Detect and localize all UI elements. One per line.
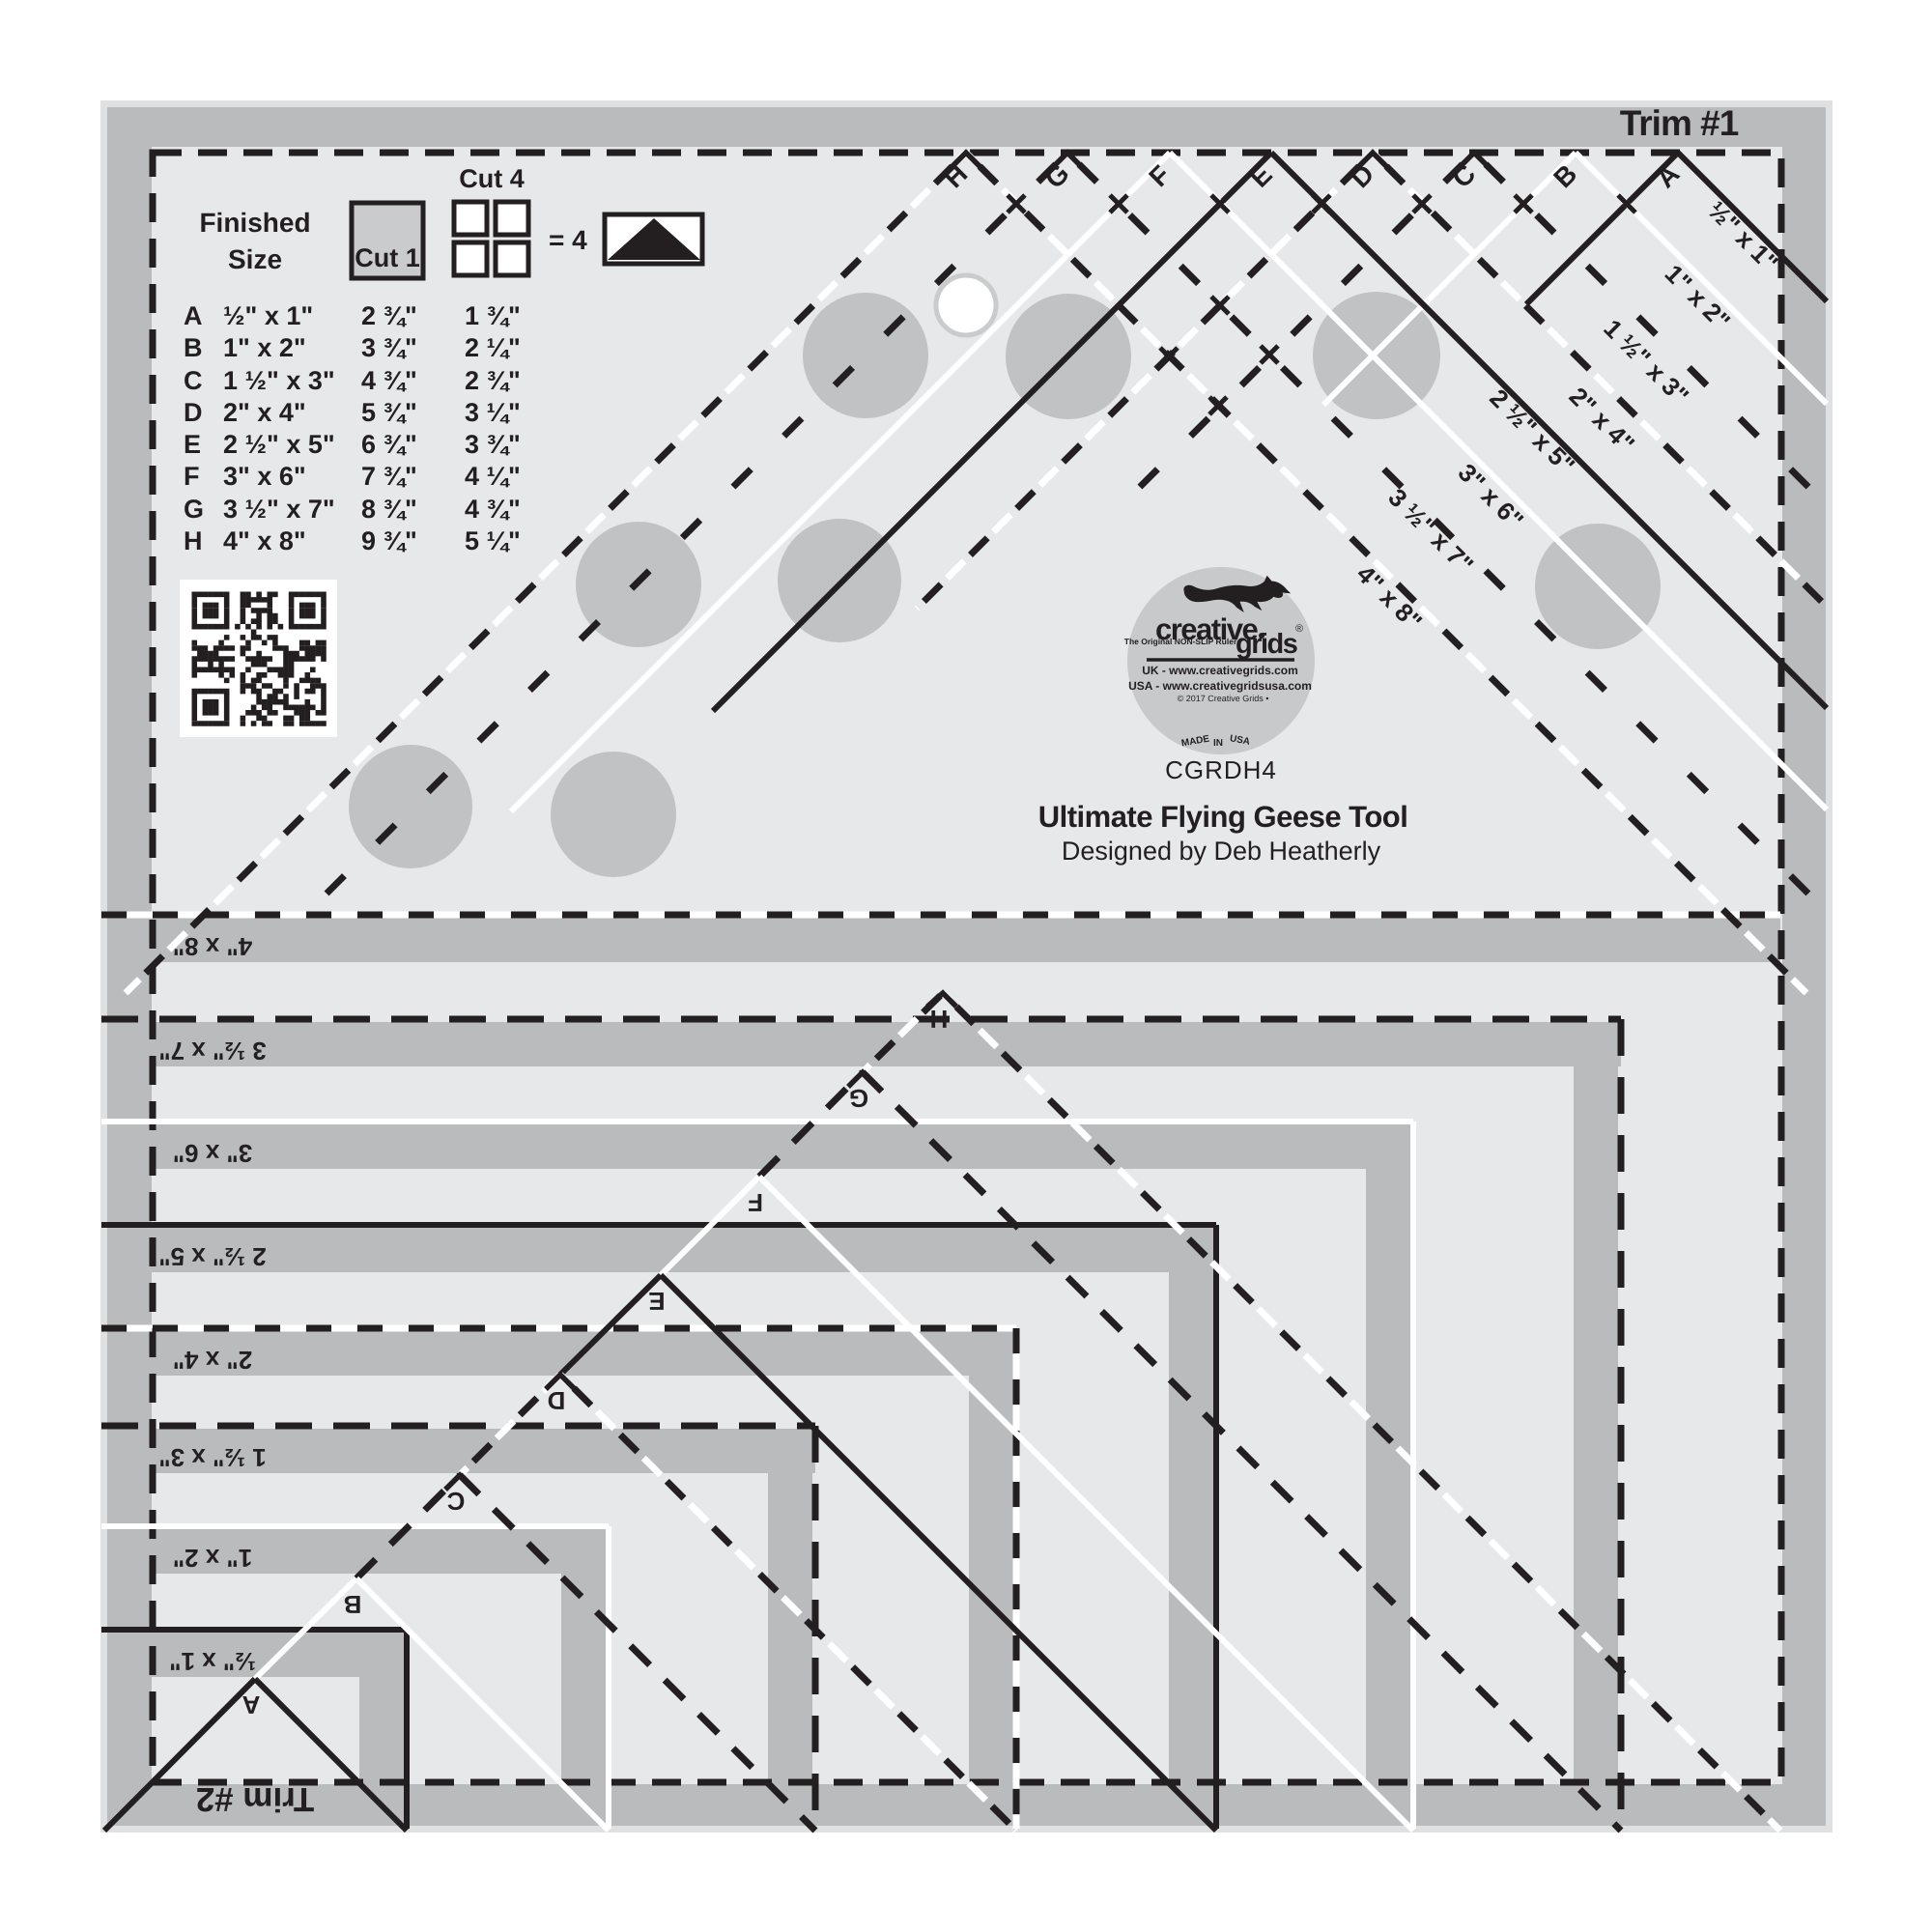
svg-text:G: G — [849, 1084, 868, 1113]
svg-text:H: H — [930, 1005, 949, 1034]
svg-text:5 ¾": 5 ¾" — [361, 398, 417, 427]
svg-text:1 ½" x 3": 1 ½" x 3" — [158, 1443, 266, 1472]
svg-text:A: A — [184, 301, 203, 330]
svg-text:2 ¼": 2 ¼" — [465, 333, 521, 362]
svg-text:USA - www.creativegridsusa.com: USA - www.creativegridsusa.com — [1128, 679, 1312, 693]
svg-text:3" x 6": 3" x 6" — [223, 462, 306, 491]
svg-text:2" x 4": 2" x 4" — [223, 398, 306, 427]
svg-text:UK - www.creativegrids.com: UK - www.creativegrids.com — [1142, 664, 1298, 677]
svg-text:3 ½" x 7": 3 ½" x 7" — [223, 495, 335, 524]
svg-text:© 2017 Creative Grids •: © 2017 Creative Grids • — [1178, 694, 1269, 703]
svg-text:CGRDH4: CGRDH4 — [1165, 755, 1277, 784]
svg-text:E: E — [184, 430, 201, 459]
svg-text:The Original NON-SLIP Ruler: The Original NON-SLIP Ruler — [1124, 637, 1237, 646]
svg-text:4" x 8": 4" x 8" — [173, 932, 252, 961]
svg-text:½" x 1": ½" x 1" — [223, 301, 313, 330]
svg-text:1 ¾": 1 ¾" — [465, 301, 521, 330]
svg-text:G: G — [184, 495, 204, 524]
svg-text:5 ¼": 5 ¼" — [465, 526, 521, 555]
svg-text:F: F — [748, 1188, 763, 1217]
svg-text:A: A — [241, 1690, 260, 1719]
svg-text:grids: grids — [1236, 629, 1297, 660]
svg-text:2 ¾": 2 ¾" — [361, 301, 417, 330]
svg-text:C: C — [184, 366, 203, 395]
svg-text:1" x 2": 1" x 2" — [223, 333, 306, 362]
svg-text:1" x 2": 1" x 2" — [173, 1544, 252, 1573]
svg-text:8 ¾": 8 ¾" — [361, 495, 417, 524]
svg-text:IN: IN — [1213, 738, 1223, 749]
svg-text:3 ¼": 3 ¼" — [465, 398, 521, 427]
svg-text:E: E — [648, 1287, 665, 1316]
svg-text:Trim #1: Trim #1 — [1620, 103, 1739, 143]
svg-text:6 ¾": 6 ¾" — [361, 430, 417, 459]
svg-text:4 ¼": 4 ¼" — [465, 462, 521, 491]
svg-text:®: ® — [1295, 623, 1303, 635]
svg-text:B: B — [344, 1590, 362, 1619]
svg-text:½" x 1": ½" x 1" — [169, 1647, 256, 1676]
svg-text:4 ¾": 4 ¾" — [465, 495, 521, 524]
svg-text:F: F — [184, 462, 200, 491]
svg-text:2 ½" x 5": 2 ½" x 5" — [158, 1242, 266, 1271]
svg-text:3 ¾": 3 ¾" — [465, 430, 521, 459]
svg-text:7 ¾": 7 ¾" — [361, 462, 417, 491]
svg-text:3 ½" x 7": 3 ½" x 7" — [158, 1037, 266, 1065]
svg-text:Finished: Finished — [199, 208, 310, 238]
svg-text:D: D — [548, 1386, 566, 1415]
svg-text:Cut 1: Cut 1 — [355, 243, 420, 272]
svg-text:B: B — [184, 333, 203, 362]
svg-text:Designed by Deb Heatherly: Designed by Deb Heatherly — [1062, 837, 1381, 866]
svg-text:4 ¾": 4 ¾" — [361, 366, 417, 395]
svg-text:H: H — [184, 526, 203, 555]
svg-text:3" x 6": 3" x 6" — [173, 1139, 252, 1168]
svg-text:C: C — [446, 1487, 465, 1516]
svg-text:Cut 4: Cut 4 — [459, 164, 525, 193]
svg-text:Ultimate Flying Geese Tool: Ultimate Flying Geese Tool — [1038, 800, 1408, 834]
svg-text:Trim #2: Trim #2 — [196, 1780, 315, 1818]
svg-text:Size: Size — [228, 244, 282, 274]
svg-text:2 ½" x 5": 2 ½" x 5" — [223, 430, 335, 459]
svg-text:3 ¾": 3 ¾" — [361, 333, 417, 362]
svg-text:2" x 4": 2" x 4" — [173, 1346, 252, 1375]
svg-text:D: D — [184, 398, 203, 427]
svg-text:9 ¾": 9 ¾" — [361, 526, 417, 555]
svg-text:2 ¾": 2 ¾" — [465, 366, 521, 395]
svg-text:= 4: = 4 — [549, 225, 587, 255]
svg-text:4" x 8": 4" x 8" — [223, 526, 306, 555]
svg-text:1 ½" x 3": 1 ½" x 3" — [223, 366, 335, 395]
